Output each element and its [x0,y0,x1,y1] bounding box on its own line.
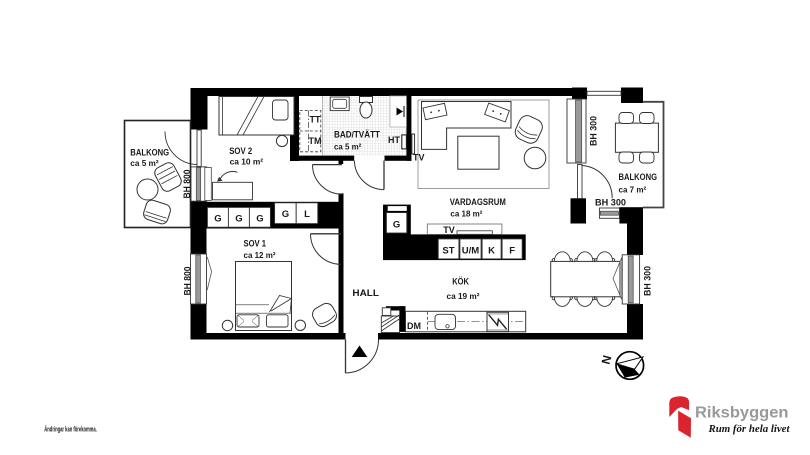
svg-text:ca 18 m²: ca 18 m² [450,209,482,219]
svg-text:TM: TM [309,136,322,146]
svg-text:Riksbyggen: Riksbyggen [695,405,789,422]
svg-text:ca 7 m²: ca 7 m² [619,184,647,194]
svg-text:TV: TV [413,153,425,163]
svg-text:BH 300: BH 300 [595,198,626,208]
svg-text:TT: TT [310,115,321,125]
svg-text:G: G [256,214,263,225]
svg-text:G: G [214,214,221,225]
svg-text:ca 5 m²: ca 5 m² [130,158,158,168]
svg-text:ca 10 m²: ca 10 m² [230,157,264,167]
svg-text:DM: DM [407,321,421,331]
svg-text:Rum för hela livet: Rum för hela livet [707,424,790,435]
svg-text:G: G [235,214,242,225]
svg-text:SOV 2: SOV 2 [229,146,252,157]
svg-text:ca 12 m²: ca 12 m² [244,250,276,260]
svg-text:SOV 1: SOV 1 [244,239,267,250]
svg-text:TV: TV [443,225,455,235]
svg-text:HALL: HALL [352,288,379,299]
svg-text:Ändringar kan förekomma.: Ändringar kan förekomma. [44,424,97,433]
svg-text:K: K [488,246,495,257]
svg-text:BALKONG: BALKONG [619,172,658,183]
svg-text:ca 19 m²: ca 19 m² [447,291,480,301]
svg-text:G: G [282,209,289,220]
svg-text:ST: ST [442,246,454,257]
svg-text:HT: HT [388,135,400,145]
svg-text:ca 5 m²: ca 5 m² [334,142,361,152]
svg-text:BH 800: BH 800 [183,267,193,296]
svg-text:G: G [393,220,400,231]
svg-text:BAD/TVÄTT: BAD/TVÄTT [334,130,380,141]
svg-text:L: L [304,209,310,220]
svg-text:BH 300: BH 300 [643,266,653,296]
svg-text:BALKONG: BALKONG [130,148,169,159]
svg-text:F: F [509,246,515,257]
svg-text:KÖK: KÖK [452,276,469,287]
svg-text:BH 300: BH 300 [589,116,599,146]
svg-text:U/M: U/M [462,246,480,257]
svg-text:VARDAGSRUM: VARDAGSRUM [450,197,506,208]
svg-text:BH 800: BH 800 [182,170,192,199]
